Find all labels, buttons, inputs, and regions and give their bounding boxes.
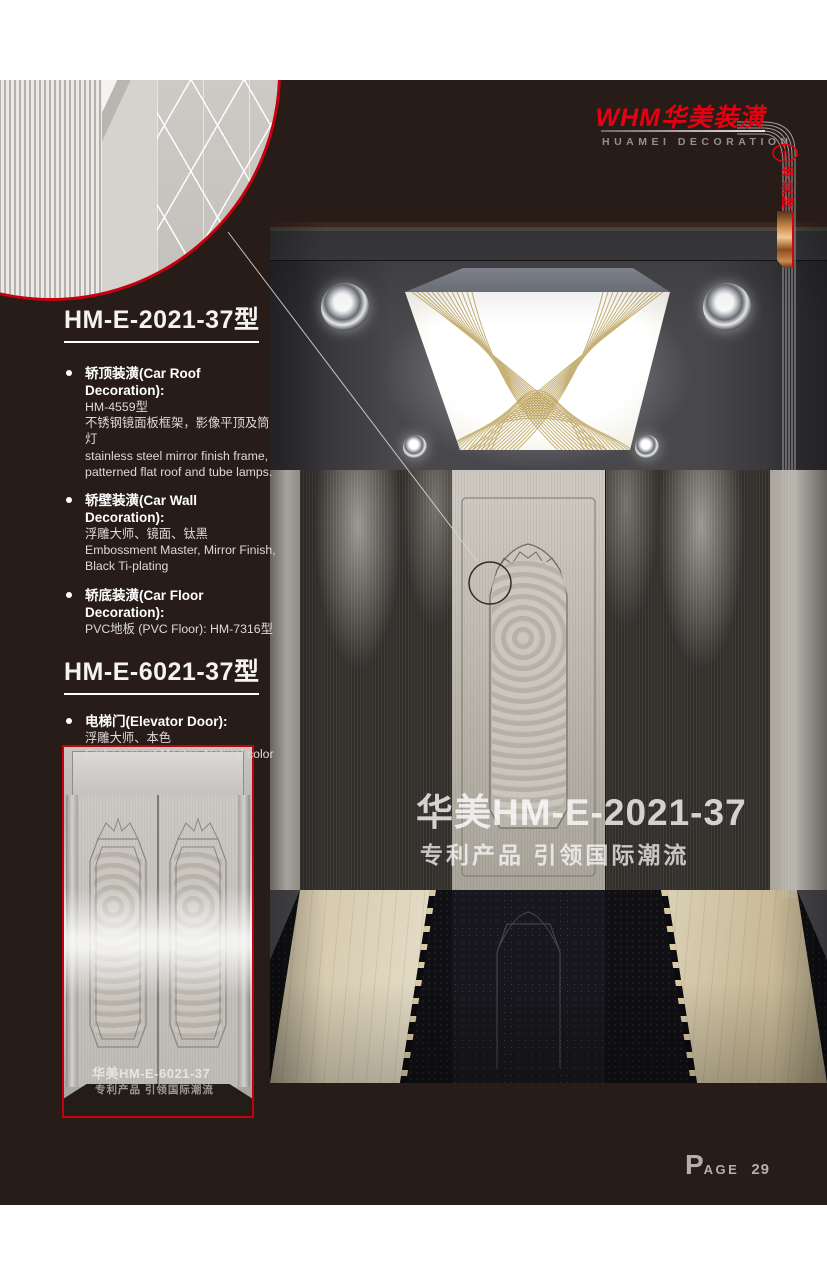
spec-title: 轿顶装潢(Car Roof Decoration): xyxy=(85,365,278,399)
door-watermark-title: 华美HM-E-6021-37 xyxy=(92,1063,210,1082)
material-detail-circle xyxy=(0,80,281,301)
bullet-icon xyxy=(66,370,72,376)
zigzag-texture xyxy=(102,80,157,298)
downlight-icon xyxy=(321,283,369,331)
page-label-rest: AGE xyxy=(704,1162,740,1177)
spec-section-6021: HM-E-6021-37型 电梯门(Elevator Door): 浮雕大师、本… xyxy=(64,652,278,762)
model-heading: HM-E-2021-37型 xyxy=(64,300,259,343)
photo-watermark-title: 华美HM-E-2021-37 xyxy=(416,782,747,836)
downlight-icon xyxy=(403,435,427,459)
page-number-value: 29 xyxy=(751,1161,770,1178)
page-label-initial: P xyxy=(685,1149,704,1181)
elevator-door-photo: 华美HM-E-6021-37 专利产品 引领国际潮流 xyxy=(62,745,254,1118)
spec-item-floor: 轿底装潢(Car Floor Decoration): PVC地板 (PVC F… xyxy=(64,587,278,637)
bullet-icon xyxy=(66,718,72,724)
spec-line: Embossment Master, Mirror Finish, xyxy=(85,542,278,558)
photo-watermark-subtitle: 专利产品 引领国际潮流 xyxy=(420,836,689,870)
model-heading: HM-E-6021-37型 xyxy=(64,652,259,695)
brand-logo: WHM华美装潢 xyxy=(596,98,765,134)
wall-panel-silver-right xyxy=(770,470,827,890)
bullet-icon xyxy=(66,592,72,598)
door-jamb-right xyxy=(238,795,250,1087)
spec-line: Black Ti-plating xyxy=(85,558,278,574)
brand-emblem-icon xyxy=(771,142,799,169)
logo-divider xyxy=(601,130,765,132)
spec-item-wall: 轿壁装潢(Car Wall Decoration): 浮雕大师、镜面、钛黑 Em… xyxy=(64,492,278,575)
spec-title: 轿底装潢(Car Floor Decoration): xyxy=(85,587,278,621)
door-medallion-outline xyxy=(82,809,154,1067)
floor-arch-outline xyxy=(452,890,605,1083)
spec-line: 不锈钢镜面板框架，影像平顶及筒灯 xyxy=(85,415,278,447)
spec-line: HM-4559型 xyxy=(85,399,278,415)
spec-line: PVC地板 (PVC Floor): HM-7316型 xyxy=(85,621,278,637)
page-number: P AGE 29 xyxy=(685,1149,770,1181)
emboss-texture xyxy=(492,560,566,820)
spec-line: stainless steel mirror finish frame, xyxy=(85,448,278,464)
spec-line: patterned flat roof and tube lamps. xyxy=(85,464,278,480)
floor-center-panel xyxy=(452,890,605,1083)
car-floor xyxy=(270,890,827,1083)
spec-line: Embossment Master, Natural color xyxy=(85,746,278,762)
door-watermark-subtitle: 专利产品 引领国际潮流 xyxy=(95,1082,214,1097)
door-center-split xyxy=(157,795,159,1087)
copper-ribbon xyxy=(777,211,794,268)
brand-vertical-text: 华美牌 xyxy=(777,166,796,211)
door-jamb-left xyxy=(66,795,78,1087)
bullet-icon xyxy=(66,497,72,503)
diamond-grid-texture xyxy=(157,80,278,298)
spec-section-2021: HM-E-2021-37型 轿顶装潢(Car Roof Decoration):… xyxy=(64,300,278,637)
spec-item-roof: 轿顶装潢(Car Roof Decoration): HM-4559型 不锈钢镜… xyxy=(64,365,278,480)
downlight-icon xyxy=(635,435,659,459)
elevator-interior-photo: 华美HM-E-2021-37 专利产品 引领国际潮流 xyxy=(270,222,827,1083)
brand-logo-subtext: HUAMEI DECORATION xyxy=(602,136,793,148)
car-cornice xyxy=(270,222,827,261)
spec-item-door: 电梯门(Elevator Door): 浮雕大师、本色 Embossment M… xyxy=(64,713,278,762)
door-medallion-outline xyxy=(162,809,234,1067)
spec-title: 电梯门(Elevator Door): xyxy=(85,713,278,730)
catalog-page: 华美HM-E-2021-37 专利产品 引领国际潮流 华美HM-E-6021-3… xyxy=(0,0,827,1287)
spec-line: 浮雕大师、镜面、钛黑 xyxy=(85,526,278,542)
downlight-icon xyxy=(703,283,751,331)
spec-title: 轿壁装潢(Car Wall Decoration): xyxy=(85,492,278,526)
ribbed-texture xyxy=(0,80,102,298)
spec-line: 浮雕大师、本色 xyxy=(85,730,278,746)
door-leaves xyxy=(78,795,238,1087)
